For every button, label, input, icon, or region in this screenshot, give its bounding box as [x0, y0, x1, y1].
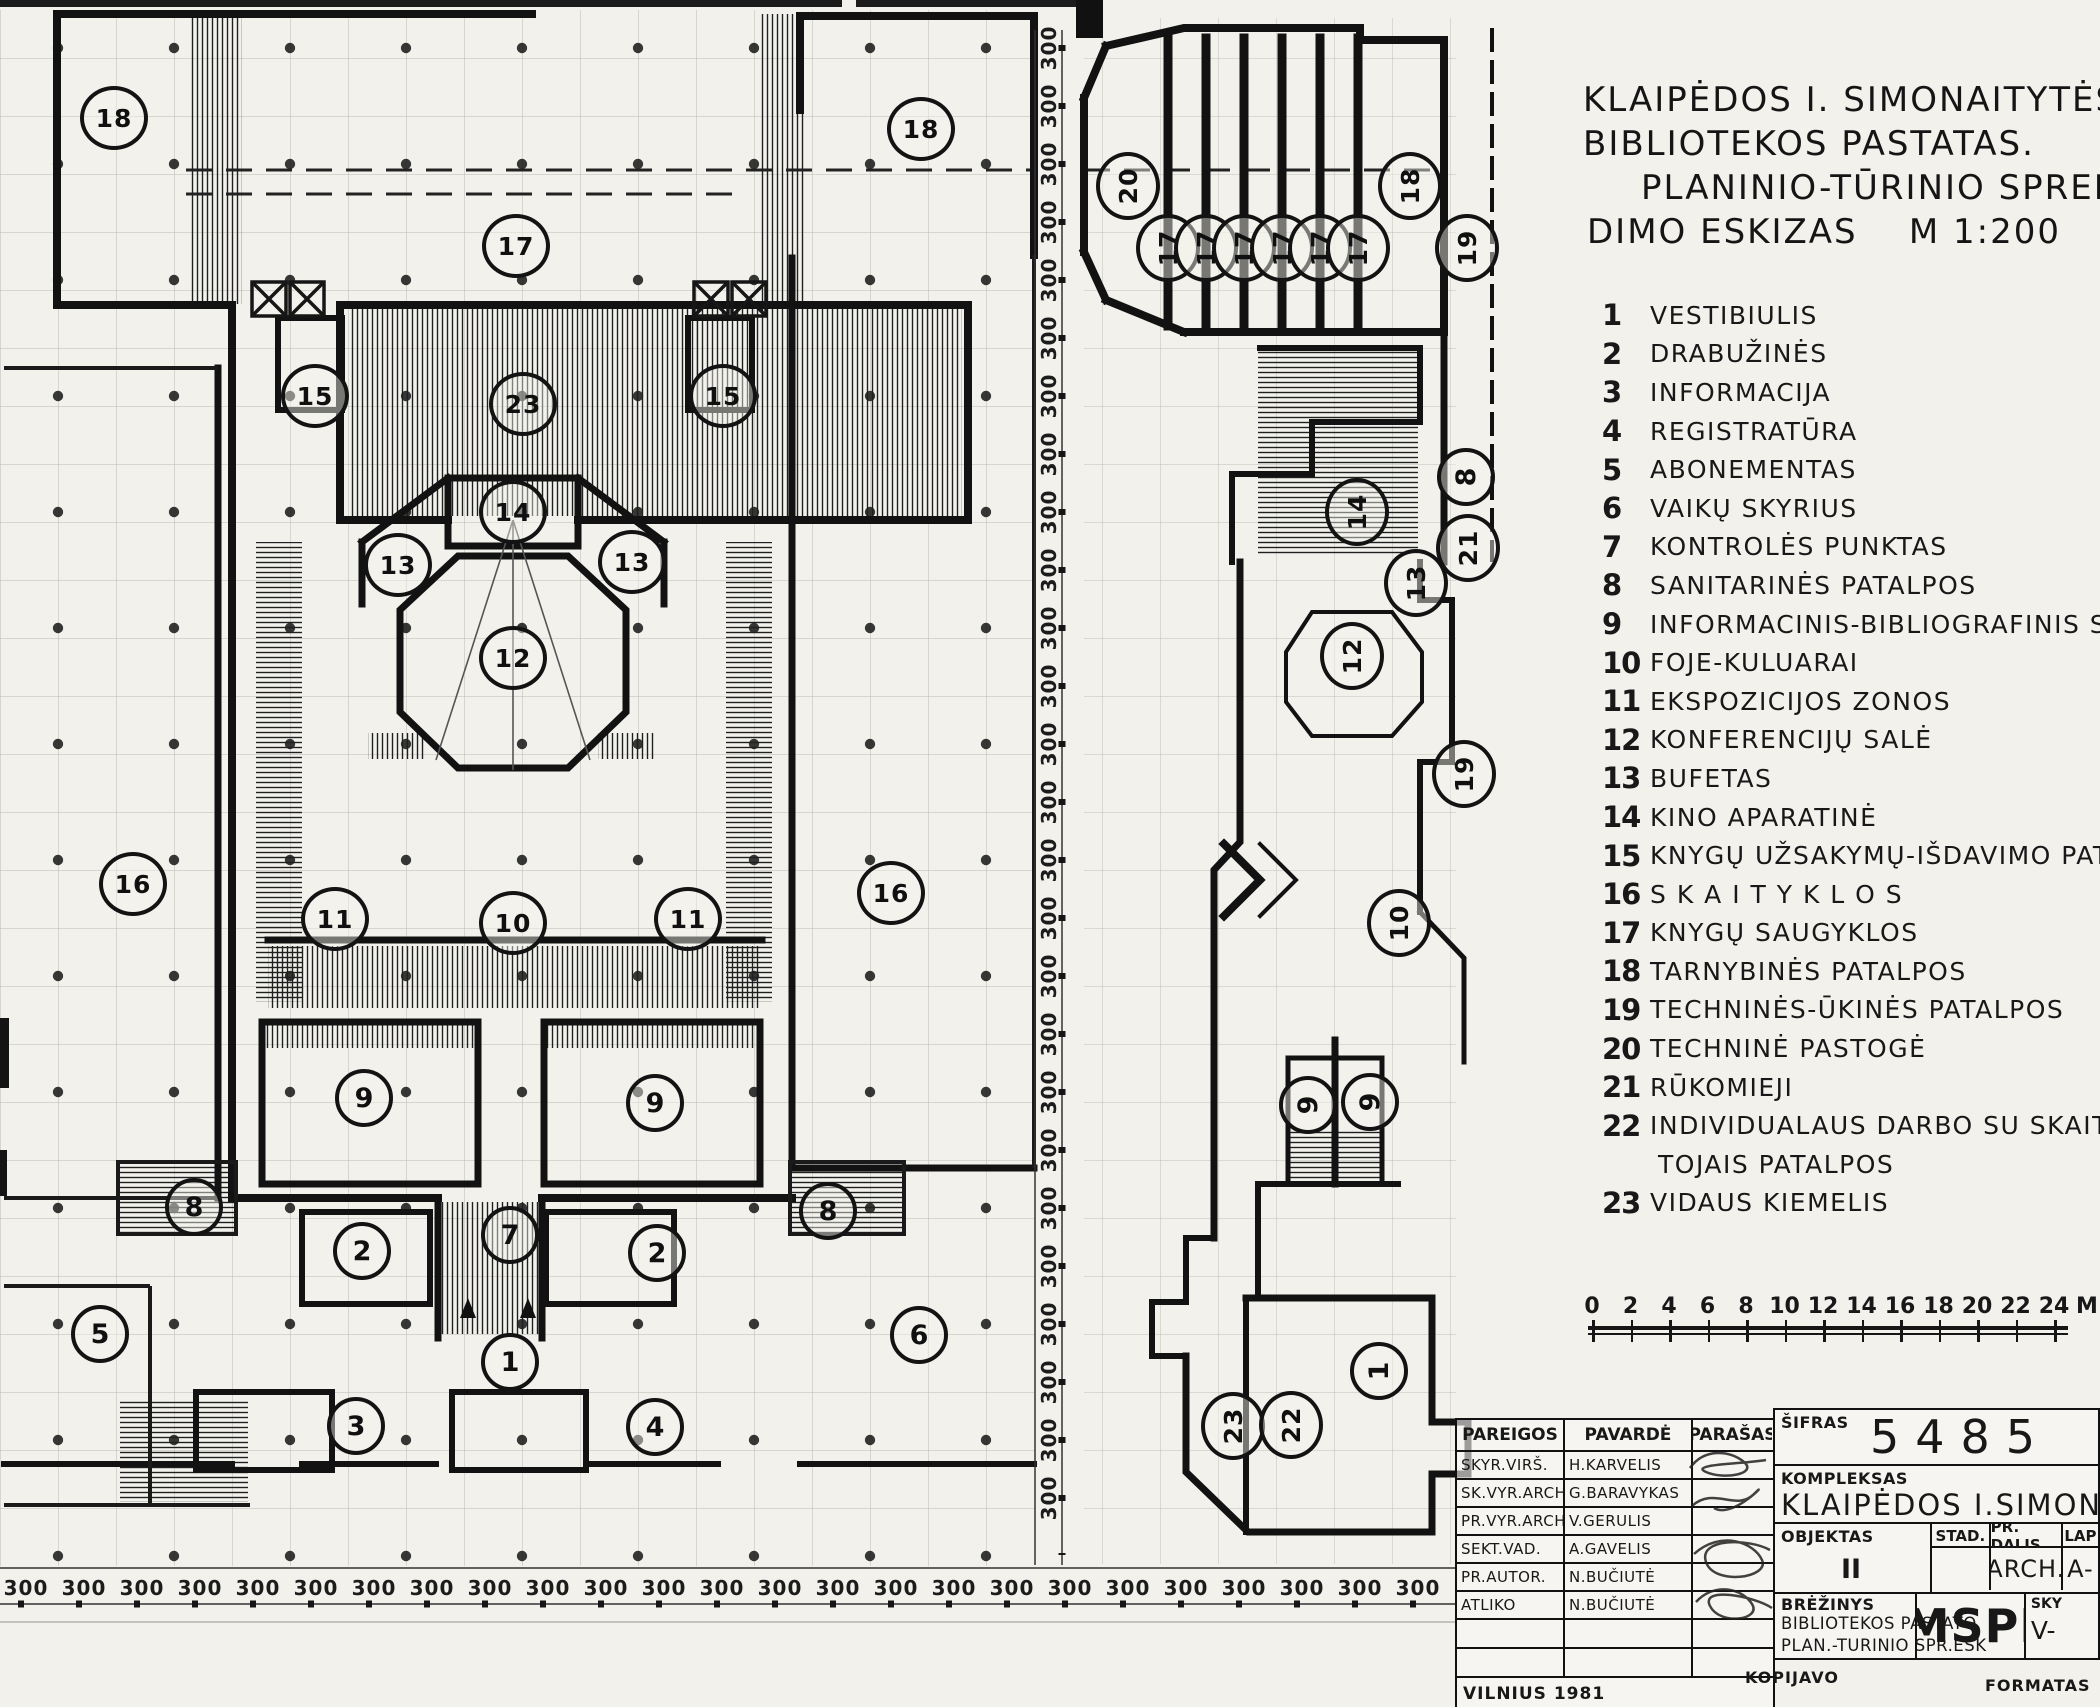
room-number-22: 22 [1259, 1391, 1323, 1459]
h-dim-label: 300 [990, 1576, 1035, 1600]
h-dim-label: 300 [584, 1576, 629, 1600]
titleblock-objektas-row: OBJEKTAS II STAD. PR. DALIS LAP ARCH. A- [1775, 1522, 2098, 1592]
legend-label: BUFETAS [1650, 764, 1772, 793]
legend-label: TARNYBINĖS PATALPOS [1650, 957, 1967, 986]
room-number-7: 7 [481, 1206, 539, 1264]
v-dim-label: 300 [1037, 606, 1061, 651]
legend-label: TECHNINĖS-ŪKINĖS PATALPOS [1650, 995, 2064, 1024]
legend-label: SANITARINĖS PATALPOS [1650, 571, 1977, 600]
scale-tick-label: 4 [1661, 1294, 1676, 1319]
room-number-18: 18 [80, 86, 148, 150]
legend-label: INDIVIDUALAUS DARBO SU SKAITY- [1650, 1111, 2100, 1140]
titleblock-cell: N.BUČIUTĖ [1563, 1564, 1691, 1590]
room-number-11: 11 [301, 887, 369, 951]
v-dim-label: 300 [1037, 84, 1061, 129]
legend-item-15: 15KNYGŲ UŽSAKYMŲ-IŠDAVIMO PAT. [1602, 836, 2100, 875]
h-dim-label: 300 [816, 1576, 861, 1600]
legend-num: 6 [1602, 491, 1650, 525]
pr-dalis-value: ARCH. [1989, 1548, 2061, 1590]
objektas-value: II [1841, 1554, 1861, 1585]
legend-num: 15 [1602, 839, 1650, 873]
h-dim-label: 300 [700, 1576, 745, 1600]
titleblock-brezinys-row: BRĖŽINYS BIBLIOTEKOS PASTATO PLAN.-TURIN… [1775, 1592, 2098, 1658]
legend-num: 22 [1602, 1109, 1650, 1143]
brezinys-line2: PLAN.-TURINIO SPR.ESK [1781, 1636, 1987, 1655]
titleblock-cell: PAVARDĖ [1563, 1420, 1691, 1450]
room-number-18: 18 [1378, 152, 1442, 220]
legend-label: FOJE-KULUARAI [1650, 648, 1859, 677]
legend-item-13: 13BUFETAS [1602, 759, 2100, 798]
legend-num: 23 [1602, 1186, 1650, 1220]
titleblock-cell: SK.VYR.ARCH [1457, 1480, 1563, 1506]
titleblock-cell: G.BARAVYKAS [1563, 1480, 1691, 1506]
legend-num: 9 [1602, 607, 1650, 641]
legend-num: 13 [1602, 761, 1650, 795]
legend-label: S K A I T Y K L O S [1650, 880, 1903, 909]
room-number-8: 8 [799, 1182, 857, 1240]
v-dim-label: 300 [1037, 1360, 1061, 1405]
legend-item-23: 23VIDAUS KIEMELIS [1602, 1184, 2100, 1223]
legend-label: INFORMACIJA [1650, 378, 1831, 407]
sky-label: SKY [2031, 1596, 2062, 1612]
lap-label: LAP [2061, 1524, 2098, 1548]
legend-label: VESTIBIULIS [1650, 301, 1818, 330]
legend-num: 8 [1602, 568, 1650, 602]
legend-num: 11 [1602, 684, 1650, 718]
titleblock-cell: N.BUČIUTĖ [1563, 1592, 1691, 1618]
legend-item-17: 17KNYGŲ SAUGYKLOS [1602, 914, 2100, 953]
legend-label: KONTROLĖS PUNKTAS [1650, 532, 1948, 561]
legend-item-4: 4REGISTRATŪRA [1602, 412, 2100, 451]
legend-item-10: 10FOJE-KULUARAI [1602, 643, 2100, 682]
v-dim-label: 300 [1037, 1128, 1061, 1173]
room-number-8: 8 [1437, 448, 1495, 506]
room-number-1: 1 [1350, 1342, 1408, 1400]
brezinys-line1: BIBLIOTEKOS PASTATO [1781, 1614, 1977, 1633]
objektas-label: OBJEKTAS [1781, 1527, 1874, 1546]
legend-item-21: 21RŪKOMIEJI [1602, 1068, 2100, 1107]
signature-scribbles-icon [1684, 1446, 1784, 1636]
scale-tick-label: 6 [1700, 1294, 1715, 1319]
titleblock-cell: SEKT.VAD. [1457, 1536, 1563, 1562]
room-number-10: 10 [479, 891, 547, 955]
h-dim-label: 300 [1338, 1576, 1383, 1600]
legend-label-wrap: TOJAIS PATALPOS [1602, 1145, 2100, 1184]
v-dim-label: 300 [1037, 316, 1061, 361]
h-dim-label: 300 [1106, 1576, 1151, 1600]
kompleksas-value: KLAIPĖDOS I.SIMONAITYTĖS V. BIBLIOTE [1781, 1488, 2100, 1522]
legend-num: 10 [1602, 646, 1650, 680]
room-number-1: 1 [481, 1333, 539, 1391]
titleblock-sifras-cell: ŠIFRAS 5485 [1775, 1410, 2098, 1464]
titleblock-cell: PR.VYR.ARCH [1457, 1508, 1563, 1534]
v-dim-label: 300 [1037, 1186, 1061, 1231]
formatas-label: FORMATAS [1985, 1676, 2091, 1695]
titleblock-cell: ATLIKO [1457, 1592, 1563, 1618]
room-number-15: 15 [689, 364, 757, 428]
h-dim-label: 300 [1280, 1576, 1325, 1600]
scale-tick-label: 12 [1808, 1294, 1839, 1319]
room-number-12: 12 [479, 626, 547, 690]
blueprint-sheet: 1817181523151413131216111011169988272516… [0, 0, 2100, 1707]
room-number-2: 2 [333, 1222, 391, 1280]
scale-tick-label: 22 [2000, 1294, 2031, 1319]
legend-item-1: 1VESTIBIULIS [1602, 296, 2100, 335]
v-dim-label: 300 [1037, 258, 1061, 303]
title-line-1: KLAIPĖDOS I. SIMONAITYTĖS [1583, 78, 2100, 122]
legend-num: 19 [1602, 993, 1650, 1027]
room-number-16: 16 [857, 861, 925, 925]
legend-item-18: 18TARNYBINĖS PATALPOS [1602, 952, 2100, 991]
v-dim-label: 300 [1037, 1244, 1061, 1289]
room-number-19: 19 [1432, 740, 1496, 808]
room-number-13: 13 [1384, 549, 1448, 617]
scale-tick-label: 8 [1738, 1294, 1753, 1319]
room-number-17: 17 [482, 214, 550, 278]
v-dim-label: 300 [1037, 1070, 1061, 1115]
sifras-value: 5485 [1870, 1410, 2051, 1464]
legend-item-20: 20TECHNINĖ PASTOGĖ [1602, 1029, 2100, 1068]
h-dim-label: 300 [4, 1576, 49, 1600]
titleblock-cell [1563, 1620, 1691, 1647]
stad-value [1932, 1548, 1989, 1590]
stad-label: STAD. [1932, 1524, 1989, 1548]
v-dim-label: 300 [1037, 1476, 1061, 1521]
room-number-17: 17 [1326, 214, 1390, 282]
scale-tick [1785, 1320, 1788, 1342]
room-number-15: 15 [281, 364, 349, 428]
legend-item-14: 14KINO APARATINĖ [1602, 798, 2100, 837]
scale-tick [1631, 1320, 1634, 1342]
legend-label: VAIKŲ SKYRIUS [1650, 494, 1858, 523]
h-dim-label: 300 [1048, 1576, 1093, 1600]
v-dim-label: 300 [1037, 548, 1061, 593]
legend-num: 7 [1602, 530, 1650, 564]
v-dim-label: 300 [1037, 896, 1061, 941]
brezinys-cell: BRĖŽINYS BIBLIOTEKOS PASTATO PLAN.-TURIN… [1775, 1594, 1915, 1658]
legend-item-7: 7KONTROLĖS PUNKTAS [1602, 528, 2100, 567]
titleblock-main: ŠIFRAS 5485 KOMPLEKSAS KLAIPĖDOS I.SIMON… [1773, 1408, 2100, 1660]
room-number-2: 2 [628, 1224, 686, 1282]
room-number-9: 9 [1279, 1076, 1337, 1134]
legend-label: EKSPOZICIJOS ZONOS [1650, 687, 1951, 716]
h-dim-label: 300 [178, 1576, 223, 1600]
titleblock-kompleksas-cell: KOMPLEKSAS KLAIPĖDOS I.SIMONAITYTĖS V. B… [1775, 1464, 2098, 1522]
titleblock-cell: PAREIGOS [1457, 1420, 1563, 1450]
title-line-3: PLANINIO-TŪRINIO SPREN [1583, 166, 2100, 210]
legend-num: 3 [1602, 375, 1650, 409]
room-number-6: 6 [890, 1306, 948, 1364]
room-number-16: 16 [99, 852, 167, 916]
h-dim-label: 300 [468, 1576, 513, 1600]
legend-num: 5 [1602, 453, 1650, 487]
scale-tick-label: 2 [1623, 1294, 1638, 1319]
legend-label: KNYGŲ UŽSAKYMŲ-IŠDAVIMO PAT. [1650, 841, 2100, 870]
room-number-18: 18 [887, 97, 955, 161]
room-number-13: 13 [598, 530, 666, 594]
v-dim-label: 300 [1037, 838, 1061, 883]
scale-tick-label: 10 [1769, 1294, 1800, 1319]
room-number-11: 11 [654, 887, 722, 951]
legend-item-3: 3INFORMACIJA [1602, 373, 2100, 412]
v-dim-label: 300 [1037, 490, 1061, 535]
scale-tick [2054, 1320, 2057, 1342]
room-number-20: 20 [1096, 152, 1160, 220]
legend-item-22: 22INDIVIDUALAUS DARBO SU SKAITY- [1602, 1106, 2100, 1145]
sheet-title: KLAIPĖDOS I. SIMONAITYTĖS BIBLIOTEKOS PA… [1583, 78, 2100, 254]
legend-label: TECHNINĖ PASTOGĖ [1650, 1034, 1926, 1063]
h-dim-label: 300 [526, 1576, 571, 1600]
titleblock-cell [1457, 1649, 1563, 1676]
title-line-2: BIBLIOTEKOS PASTATAS. [1583, 122, 2100, 166]
scale-bar-line [1588, 1326, 2068, 1330]
room-number-9: 9 [1341, 1073, 1399, 1131]
sky-cell: SKY V- [2024, 1594, 2098, 1658]
v-dim-label: 300 [1037, 1418, 1061, 1463]
v-dim-label: 300 [1037, 722, 1061, 767]
legend-label: VIDAUS KIEMELIS [1650, 1188, 1889, 1217]
scale-tick-label: 18 [1923, 1294, 1954, 1319]
v-dim-label: 300 [1037, 142, 1061, 187]
scale-unit-label: M [2076, 1294, 2098, 1319]
h-dim-label: 300 [236, 1576, 281, 1600]
room-number-14: 14 [1325, 478, 1389, 546]
room-number-10: 10 [1367, 889, 1431, 957]
brezinys-label: BRĖŽINYS [1781, 1595, 1875, 1614]
legend-label: REGISTRATŪRA [1650, 417, 1858, 446]
legend-num: 20 [1602, 1032, 1650, 1066]
titleblock-cell: V.GERULIS [1563, 1508, 1691, 1534]
v-dim-label: 300 [1037, 780, 1061, 825]
scale-tick [1592, 1320, 1595, 1342]
h-dim-label: 300 [294, 1576, 339, 1600]
title-line-4: DIMO ESKIZAS M 1:200 [1583, 210, 2100, 254]
objektas-cell: OBJEKTAS II [1775, 1524, 1930, 1592]
pr-dalis-label: PR. DALIS [1989, 1524, 2061, 1548]
titleblock-cell: H.KARVELIS [1563, 1452, 1691, 1478]
scale-bar: 024681012141618202224M [1588, 1298, 2093, 1350]
h-dim-label: 300 [932, 1576, 977, 1600]
h-dim-label: 300 [62, 1576, 107, 1600]
legend-item-2: 2DRABUŽINĖS [1602, 335, 2100, 374]
legend-num: 4 [1602, 414, 1650, 448]
scale-bar-line2 [1588, 1333, 2068, 1335]
h-dim-label: 300 [1164, 1576, 1209, 1600]
v-dim-label: 300 [1037, 1012, 1061, 1057]
legend-label: KONFERENCIJŲ SALĖ [1650, 725, 1933, 754]
room-number-8: 8 [165, 1178, 223, 1236]
legend-num: 16 [1602, 877, 1650, 911]
scale-tick [1977, 1320, 1980, 1342]
legend-label: INFORMACINIS-BIBLIOGRAFINIS SKYR [1650, 610, 2100, 639]
legend-item-19: 19TECHNINĖS-ŪKINĖS PATALPOS [1602, 991, 2100, 1030]
kopijavo-label: KOPIJAVO [1745, 1668, 1839, 1687]
scale-tick [1862, 1320, 1865, 1342]
legend-item-16: 16S K A I T Y K L O S [1602, 875, 2100, 914]
sky-value: V- [2031, 1616, 2056, 1645]
sifras-label: ŠIFRAS [1781, 1413, 1849, 1432]
legend-label: KNYGŲ SAUGYKLOS [1650, 918, 1919, 947]
h-dim-label: 300 [410, 1576, 455, 1600]
legend-num: 18 [1602, 954, 1650, 988]
legend-num: 1 [1602, 298, 1650, 332]
legend-item-12: 12KONFERENCIJŲ SALĖ [1602, 721, 2100, 760]
v-dim-label: 300 [1037, 954, 1061, 999]
room-number-4: 4 [626, 1398, 684, 1456]
room-number-23: 23 [489, 372, 557, 436]
scale-tick-label: 0 [1584, 1294, 1599, 1319]
v-dim-label: 300 [1037, 200, 1061, 245]
scale-tick [1823, 1320, 1826, 1342]
v-dim-label: 300 [1037, 1302, 1061, 1347]
room-number-14: 14 [479, 480, 547, 544]
scale-tick [1900, 1320, 1903, 1342]
titleblock-cell [1563, 1649, 1691, 1676]
legend-num: 2 [1602, 337, 1650, 371]
legend-label: RŪKOMIEJI [1650, 1073, 1793, 1102]
titleblock-cell [1457, 1620, 1563, 1647]
legend-item-8: 8SANITARINĖS PATALPOS [1602, 566, 2100, 605]
scale-tick-label: 20 [1962, 1294, 1993, 1319]
room-number-13: 13 [364, 533, 432, 597]
legend-item-9: 9INFORMACINIS-BIBLIOGRAFINIS SKYR [1602, 605, 2100, 644]
legend-item-11: 11EKSPOZICIJOS ZONOS [1602, 682, 2100, 721]
v-dim-label: 300 [1037, 374, 1061, 419]
room-number-9: 9 [626, 1074, 684, 1132]
room-number-5: 5 [71, 1305, 129, 1363]
room-number-9: 9 [335, 1069, 393, 1127]
room-number-12: 12 [1320, 622, 1384, 690]
legend-num: 21 [1602, 1070, 1650, 1104]
scale-tick [2016, 1320, 2019, 1342]
titleblock-cell: SKYR.VIRŠ. [1457, 1452, 1563, 1478]
room-number-3: 3 [327, 1397, 385, 1455]
legend-num: 17 [1602, 916, 1650, 950]
titleblock-cell: PR.AUTOR. [1457, 1564, 1563, 1590]
room-number-23: 23 [1201, 1392, 1265, 1460]
legend-label: ABONEMENTAS [1650, 455, 1857, 484]
v-dim-label: 300 [1037, 664, 1061, 709]
legend-num: 12 [1602, 723, 1650, 757]
h-dim-label: 300 [874, 1576, 919, 1600]
h-dim-label: 300 [1222, 1576, 1267, 1600]
h-dim-label: 300 [1396, 1576, 1441, 1600]
legend-item-6: 6VAIKŲ SKYRIUS [1602, 489, 2100, 528]
legend-item-5: 5ABONEMENTAS [1602, 450, 2100, 489]
scale-tick-label: 14 [1846, 1294, 1877, 1319]
h-dim-label: 300 [352, 1576, 397, 1600]
titleblock-cell: A.GAVELIS [1563, 1536, 1691, 1562]
scale-tick-label: 24 [2039, 1294, 2070, 1319]
v-dim-label: 300 [1037, 26, 1061, 71]
v-dim-label: 300 [1037, 432, 1061, 477]
room-number-19: 19 [1435, 214, 1499, 282]
h-dim-label: 300 [120, 1576, 165, 1600]
legend-label: DRABUŽINĖS [1650, 339, 1828, 368]
legend-num: 14 [1602, 800, 1650, 834]
h-dim-label: 300 [758, 1576, 803, 1600]
stad-subtable: STAD. PR. DALIS LAP ARCH. A- [1930, 1524, 2098, 1592]
scale-tick [1708, 1320, 1711, 1342]
lap-value: A- [2061, 1548, 2098, 1590]
h-dim-label: 300 [642, 1576, 687, 1600]
scale-tick [1669, 1320, 1672, 1342]
room-legend: 1VESTIBIULIS2DRABUŽINĖS3INFORMACIJA4REGI… [1602, 296, 2100, 1222]
vilnius-year-label: VILNIUS 1981 [1457, 1676, 1773, 1707]
kompleksas-label: KOMPLEKSAS [1781, 1469, 1908, 1488]
legend-label: KINO APARATINĖ [1650, 803, 1877, 832]
scale-tick [1939, 1320, 1942, 1342]
scale-tick [1746, 1320, 1749, 1342]
scale-tick-label: 16 [1885, 1294, 1916, 1319]
